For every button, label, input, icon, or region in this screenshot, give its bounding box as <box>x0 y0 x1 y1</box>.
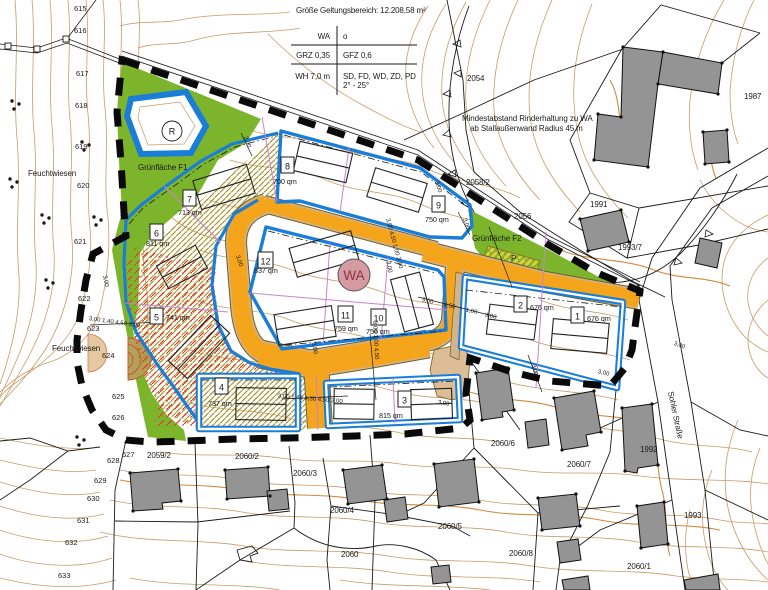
svg-text:1992: 1992 <box>640 445 658 454</box>
svg-text:676 qm: 676 qm <box>587 314 611 323</box>
svg-text:1987: 1987 <box>744 92 762 101</box>
svg-text:GRZ 0,35: GRZ 0,35 <box>296 51 331 60</box>
svg-text:2060/6: 2060/6 <box>491 439 516 448</box>
svg-text:R: R <box>169 127 176 137</box>
svg-text:2056: 2056 <box>514 212 532 221</box>
svg-text:WH 7,0 m: WH 7,0 m <box>295 72 330 81</box>
svg-text:ab Stallaußenwand Radius 45 m: ab Stallaußenwand Radius 45 m <box>470 124 583 133</box>
svg-text:8: 8 <box>285 162 290 172</box>
svg-text:631: 631 <box>77 516 90 525</box>
svg-text:GFZ 0,6: GFZ 0,6 <box>343 51 372 60</box>
svg-text:1: 1 <box>575 312 580 322</box>
svg-text:3: 3 <box>402 396 407 406</box>
svg-text:616: 616 <box>74 26 87 35</box>
svg-text:2060/4: 2060/4 <box>330 506 355 515</box>
svg-text:632: 632 <box>65 538 78 547</box>
svg-text:11: 11 <box>341 311 350 321</box>
svg-text:12: 12 <box>260 257 270 267</box>
svg-text:615: 615 <box>74 4 87 13</box>
svg-text:759 qm: 759 qm <box>334 324 358 333</box>
svg-text:621: 621 <box>74 237 87 246</box>
svg-text:618: 618 <box>75 101 88 110</box>
svg-text:811 qm: 811 qm <box>146 239 169 248</box>
svg-text:Grünfläche F1: Grünfläche F1 <box>138 163 188 172</box>
svg-text:625: 625 <box>112 392 125 401</box>
svg-text:2: 2 <box>518 301 523 311</box>
svg-text:2060/8: 2060/8 <box>509 549 534 558</box>
svg-text:626: 626 <box>112 413 125 422</box>
svg-text:624: 624 <box>102 351 115 360</box>
svg-text:2060/2: 2060/2 <box>235 452 260 461</box>
svg-text:Größe Geltungsbereich: 12.208,: Größe Geltungsbereich: 12.208,58 m² <box>296 6 426 15</box>
svg-text:6: 6 <box>154 229 159 239</box>
svg-text:741 qm: 741 qm <box>166 313 190 322</box>
svg-text:837 qm: 837 qm <box>254 266 278 275</box>
svg-text:629: 629 <box>94 476 107 485</box>
svg-text:622: 622 <box>78 294 91 303</box>
svg-text:2060/5: 2060/5 <box>438 522 463 531</box>
svg-text:Feuchtwiesen: Feuchtwiesen <box>28 169 76 178</box>
svg-text:630: 630 <box>87 494 100 503</box>
svg-text:2058/2: 2058/2 <box>466 178 491 187</box>
svg-text:628: 628 <box>107 456 120 465</box>
svg-text:627: 627 <box>122 450 135 459</box>
svg-text:2060/1: 2060/1 <box>627 562 652 571</box>
svg-text:617: 617 <box>76 69 89 78</box>
svg-text:700 qm: 700 qm <box>273 177 297 186</box>
svg-text:620: 620 <box>77 181 90 190</box>
svg-text:750 qm: 750 qm <box>425 215 449 224</box>
svg-text:4: 4 <box>219 383 224 393</box>
svg-text:2059/2: 2059/2 <box>147 451 172 460</box>
svg-text:P: P <box>511 254 516 263</box>
svg-text:Feuchtwiesen: Feuchtwiesen <box>52 344 100 353</box>
svg-text:623: 623 <box>87 324 100 333</box>
svg-text:2060/7: 2060/7 <box>567 460 592 469</box>
svg-text:676 qm: 676 qm <box>530 303 554 312</box>
svg-text:SD, FD, WD, ZD, PD: SD, FD, WD, ZD, PD <box>343 72 416 81</box>
svg-text:7: 7 <box>187 195 192 205</box>
svg-text:WA: WA <box>343 268 364 283</box>
svg-text:2060: 2060 <box>341 550 359 559</box>
svg-text:2054: 2054 <box>467 74 485 83</box>
svg-text:9: 9 <box>436 201 441 211</box>
svg-text:5: 5 <box>154 313 159 323</box>
svg-text:737 qm: 737 qm <box>208 399 232 408</box>
svg-text:2° - 25°: 2° - 25° <box>343 81 369 90</box>
svg-text:Mindestabstand Rinderhaltung z: Mindestabstand Rinderhaltung zu WA <box>462 114 593 123</box>
svg-text:633: 633 <box>58 571 71 580</box>
svg-text:2060/3: 2060/3 <box>293 469 318 478</box>
svg-text:Grünfläche F2: Grünfläche F2 <box>472 234 522 243</box>
svg-text:1993: 1993 <box>684 511 702 520</box>
svg-text:713 qm: 713 qm <box>178 208 202 217</box>
svg-text:1993/7: 1993/7 <box>618 243 643 252</box>
svg-text:o: o <box>343 32 348 41</box>
svg-text:1991: 1991 <box>590 200 608 209</box>
svg-text:WA: WA <box>318 32 331 41</box>
svg-text:815 qm: 815 qm <box>379 411 403 420</box>
